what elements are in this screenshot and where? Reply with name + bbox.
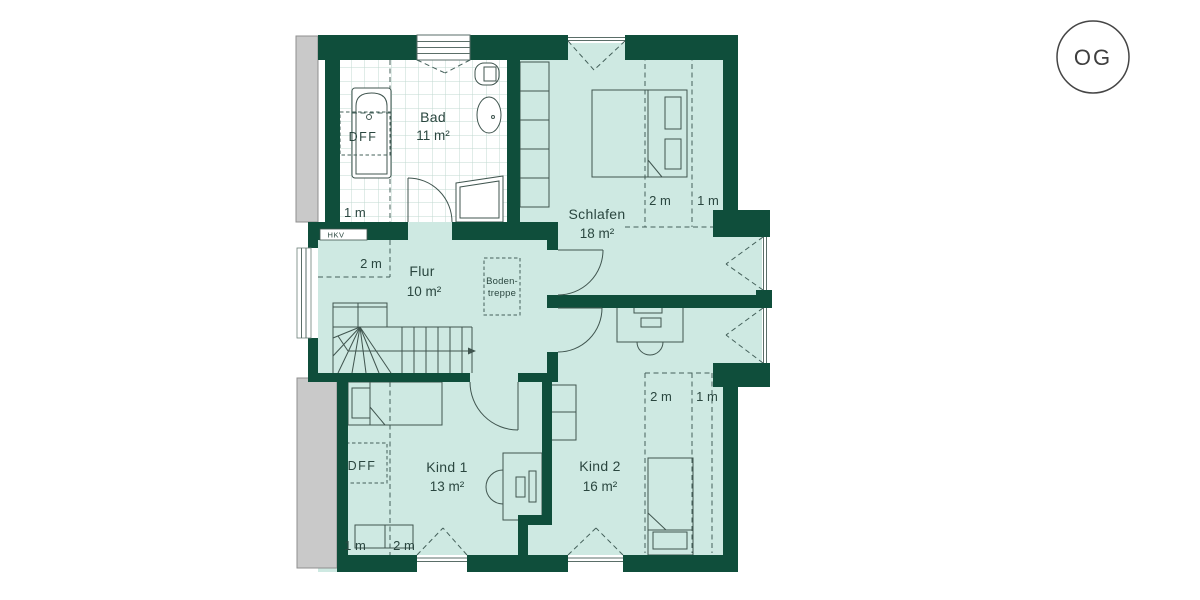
room-label-schlafen: Schlafen [569, 206, 626, 222]
heating-manifold-box: HKV [320, 229, 367, 240]
dim-bad-1m: 1 m [344, 205, 366, 220]
room-area-kind1: 13 m² [430, 479, 465, 494]
room-area-flur: 10 m² [407, 284, 442, 299]
toilet [475, 63, 499, 85]
flur-left-window [297, 248, 311, 338]
floor-badge: OG [1057, 21, 1129, 93]
floorplan-drawing: HKV Bad 11 m² Schlafen 18 m² Flur 10 m² … [0, 0, 1200, 600]
dim-kind1-2m: 2 m [393, 538, 415, 553]
room-area-schlafen: 18 m² [580, 226, 615, 241]
bodentreppe-label-line1: Boden- [486, 276, 518, 287]
room-label-kind2: Kind 2 [579, 458, 621, 474]
room-area-bad: 11 m² [416, 128, 450, 143]
room-label-bad: Bad [420, 109, 446, 125]
floorplan-canvas: HKV Bad 11 m² Schlafen 18 m² Flur 10 m² … [0, 0, 1200, 600]
roof-strip-top [296, 36, 318, 222]
dim-flur-2m: 2 m [360, 256, 382, 271]
roof-strip-bottom [297, 378, 337, 568]
room-area-kind2: 16 m² [583, 479, 618, 494]
room-label-kind1: Kind 1 [426, 459, 468, 475]
room-label-flur: Flur [409, 263, 434, 279]
sink [477, 97, 501, 133]
shower [456, 176, 503, 222]
bodentreppe-label-line2: treppe [488, 288, 516, 299]
dim-kind2-2m: 2 m [650, 389, 672, 404]
dff-label-kind1: DFF [348, 459, 377, 473]
dim-schlafen-2m: 2 m [649, 193, 671, 208]
dim-kind1-1m: 1 m [344, 538, 366, 553]
hkv-label: HKV [328, 231, 345, 240]
floor-badge-label: OG [1074, 45, 1112, 70]
dff-label-bad: DFF [349, 130, 378, 144]
dim-schlafen-1m: 1 m [697, 193, 719, 208]
dim-kind2-1m: 1 m [696, 389, 718, 404]
